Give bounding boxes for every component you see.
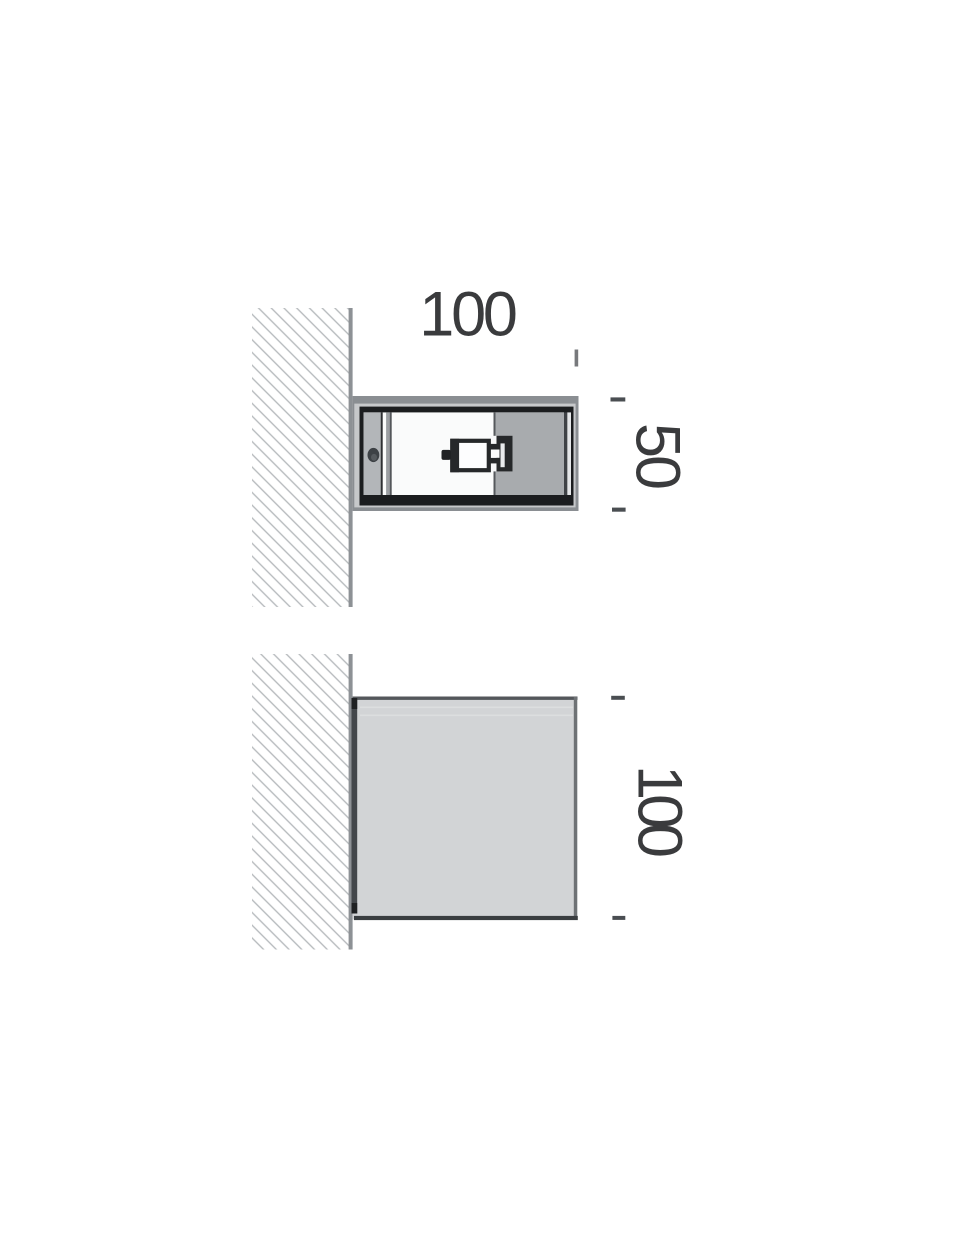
svg-text:100: 100: [625, 765, 695, 856]
svg-text:100: 100: [419, 280, 516, 350]
svg-text:50: 50: [623, 423, 693, 488]
